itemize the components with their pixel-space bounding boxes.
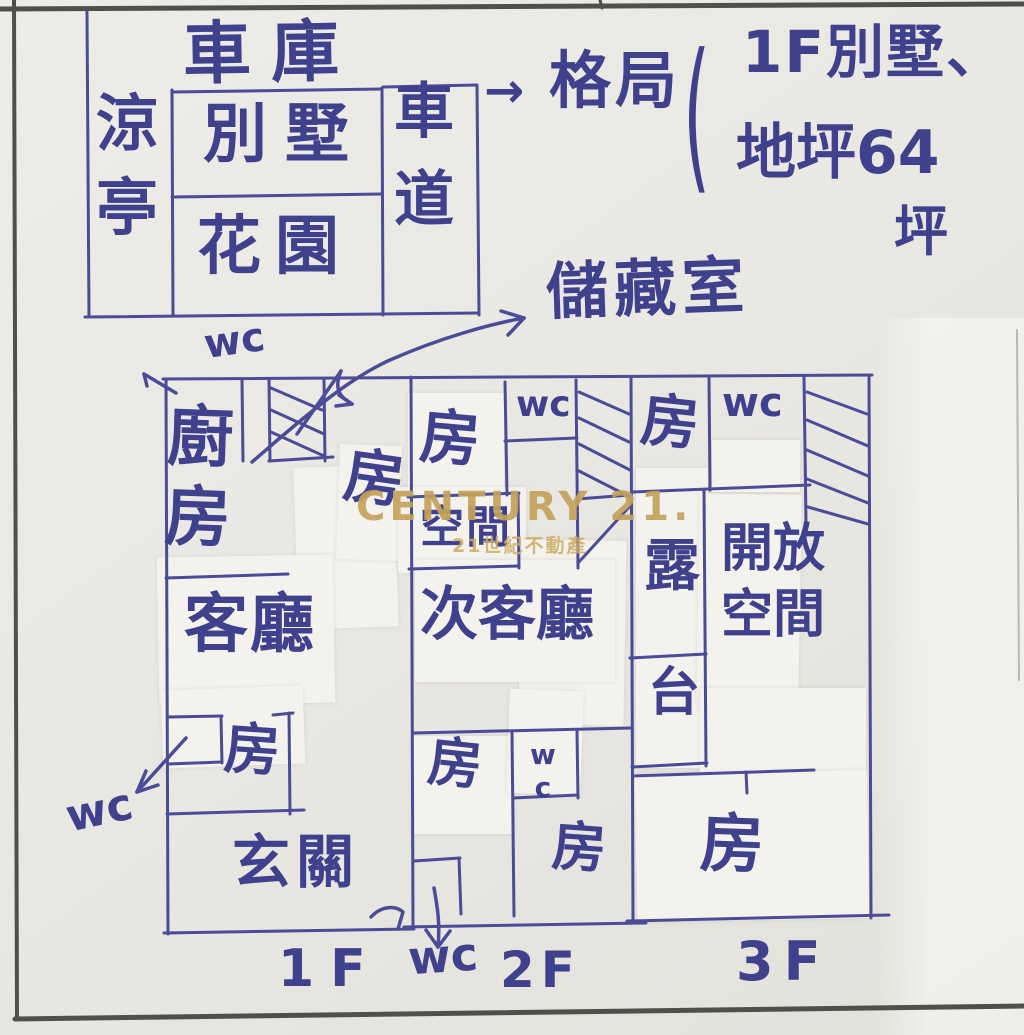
f2-wc-bottom-label: wc xyxy=(528,738,557,804)
open-space-line1: 開放 xyxy=(710,516,836,582)
f2-room-bottom-left-label: 房 xyxy=(425,733,485,795)
open-space-line2: 空間 xyxy=(710,582,836,648)
living-room-label: 客廳 xyxy=(184,592,316,659)
entry-hall-label: 玄關 xyxy=(232,832,360,893)
annotation-arrow-icon: → xyxy=(484,66,524,116)
f1-room-bottom-label: 房 xyxy=(222,720,282,783)
open-space-label: 開放 空間 xyxy=(710,516,836,648)
annotation-paren: ( xyxy=(683,30,710,203)
secondary-living-label: 次客廳 xyxy=(420,584,594,645)
villa-label: 別墅 xyxy=(203,102,367,169)
f3-wc-top-label: wc xyxy=(722,382,783,424)
garage-label: 車庫 xyxy=(182,16,359,90)
f2-room-top-label: 房 xyxy=(417,406,482,474)
f3-room-top-label: 房 xyxy=(638,389,702,456)
garden-label: 花園 xyxy=(197,214,353,281)
storage-room-label: 儲藏室 xyxy=(545,252,751,324)
f3-room-bottom-label: 房 xyxy=(699,811,765,880)
floor-label-3f: 3F xyxy=(736,934,830,991)
balcony-upper-char: 露 xyxy=(644,538,700,597)
annotation-title: 格局 xyxy=(549,48,681,113)
balcony-lower-char: 台 xyxy=(648,666,700,721)
century21-watermark-sub: 21世紀不動產 xyxy=(452,531,587,558)
f2-wc-top-label: wc xyxy=(516,386,571,424)
floorplan-sketch-photo: 車庫 涼亭 別墅 花園 車道 → 格局 ( 1F別墅、 地坪64 坪 儲藏室 w… xyxy=(0,0,1024,1035)
f2-room-bottom-right-label: 房 xyxy=(550,818,608,878)
century21-watermark: CENTURY 21. xyxy=(356,484,692,530)
floor-label-2f: 2F xyxy=(500,944,581,997)
kitchen-label: 廚房 xyxy=(163,397,239,559)
annotation-line1: 1F別墅、 xyxy=(742,22,1006,83)
floor-label-wc: wc xyxy=(406,930,479,983)
annotation-line3: 坪 xyxy=(894,204,948,261)
annotation-line2: 地坪64 xyxy=(736,122,940,185)
wc-above-plan-label: wc xyxy=(201,316,267,366)
driveway-label: 車道 xyxy=(394,68,458,244)
pavilion-label: 涼亭 xyxy=(96,82,162,250)
floor-label-1f: 1F xyxy=(278,942,382,997)
